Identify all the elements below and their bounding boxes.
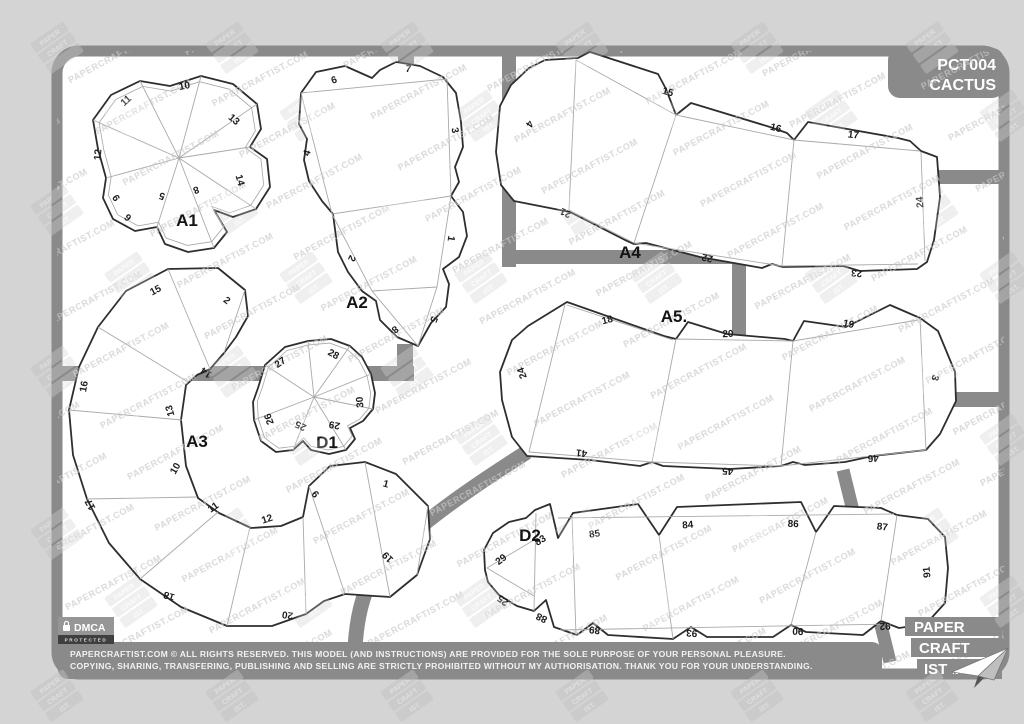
papercraft-sheet-page: PAPER CRAFT IST. PAPER CRAFT IST. PAPER … bbox=[0, 0, 1024, 724]
template-canvas: PAPER CRAFT IST. PAPER CRAFT IST. PAPER … bbox=[0, 0, 1024, 724]
global-watermark-overlay bbox=[0, 0, 1024, 724]
